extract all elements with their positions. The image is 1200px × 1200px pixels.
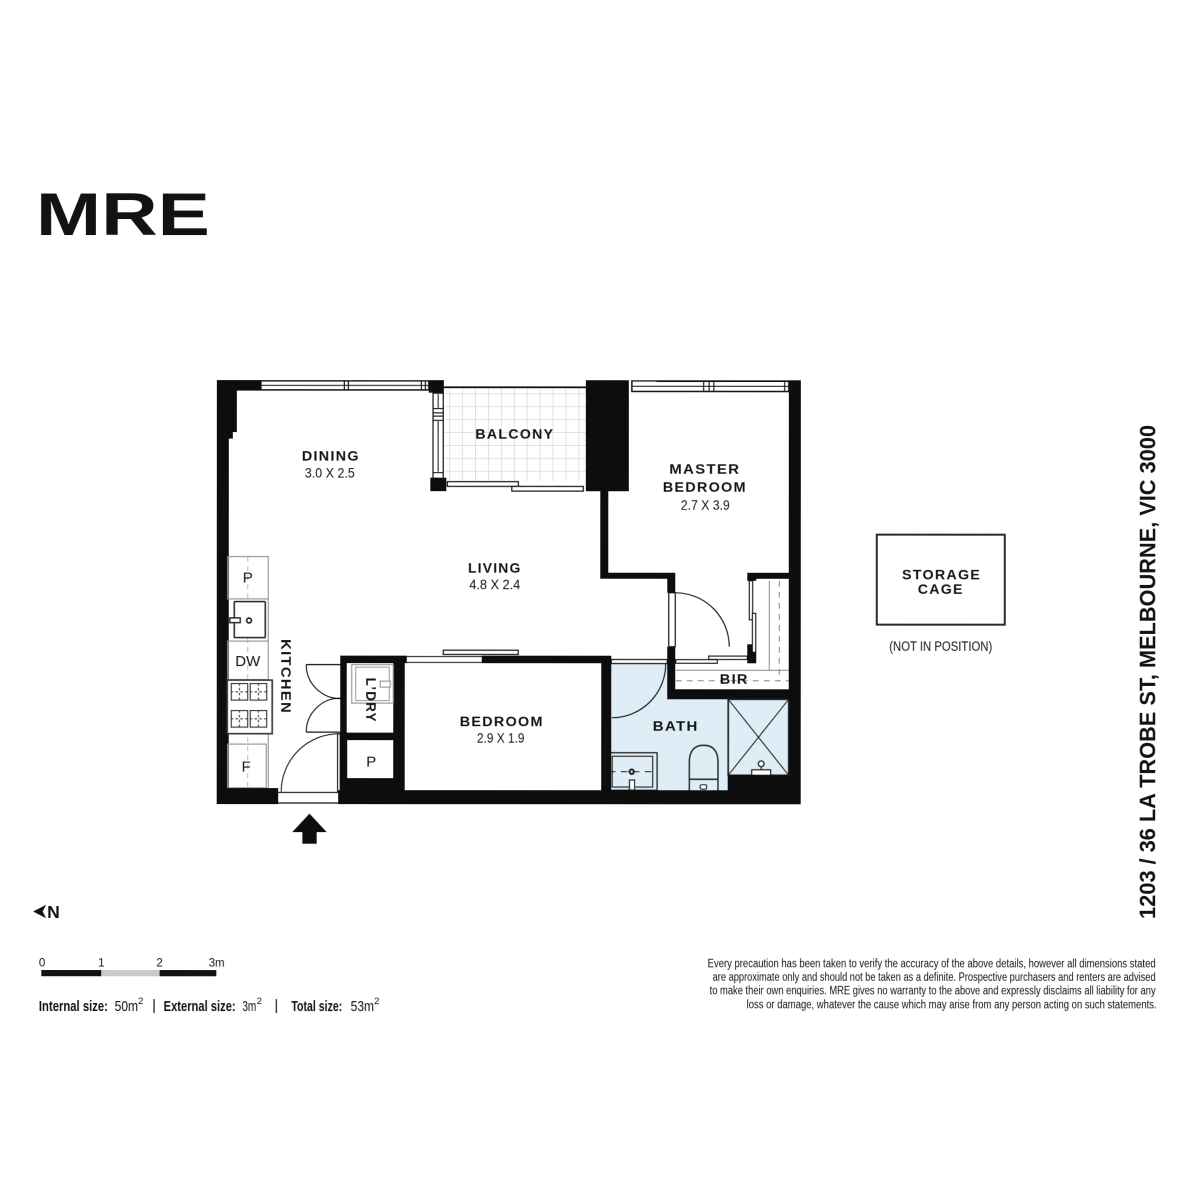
svg-text:STORAGE: STORAGE xyxy=(902,568,981,583)
svg-text:2: 2 xyxy=(138,996,143,1007)
svg-text:4.8 X 2.4: 4.8 X 2.4 xyxy=(469,577,520,592)
svg-text:3.0 X 2.5: 3.0 X 2.5 xyxy=(305,465,355,480)
svg-text:are approximate only and shoul: are approximate only and should not be t… xyxy=(713,972,1156,984)
svg-text:Internal size:: Internal size: xyxy=(39,998,108,1015)
svg-text:External size:: External size: xyxy=(164,998,236,1015)
svg-text:LIVING: LIVING xyxy=(468,561,522,576)
svg-text:P: P xyxy=(243,570,253,587)
svg-text:BALCONY: BALCONY xyxy=(475,427,554,442)
svg-text:2.7 X 3.9: 2.7 X 3.9 xyxy=(681,498,730,513)
svg-text:1: 1 xyxy=(98,958,104,970)
svg-text:CAGE: CAGE xyxy=(918,582,964,597)
svg-text:BATH: BATH xyxy=(653,719,699,734)
svg-text:(NOT IN POSITION): (NOT IN POSITION) xyxy=(889,639,992,654)
svg-text:3m: 3m xyxy=(209,958,225,970)
svg-text:Total size:: Total size: xyxy=(291,998,342,1015)
svg-text:2: 2 xyxy=(374,996,379,1007)
svg-text:2: 2 xyxy=(257,996,262,1007)
svg-text:L’DRY: L’DRY xyxy=(363,678,378,723)
svg-text:BEDROOM: BEDROOM xyxy=(460,714,544,729)
svg-text:N: N xyxy=(47,902,60,922)
svg-text:to make their own enquiries. M: to make their own enquiries. MRE gives n… xyxy=(710,985,1156,997)
svg-text:2.9 X 1.9: 2.9 X 1.9 xyxy=(477,730,525,745)
svg-text:Every precaution has been take: Every precaution has been taken to verif… xyxy=(708,958,1156,970)
svg-text:MASTER: MASTER xyxy=(669,462,740,477)
svg-text:MRE: MRE xyxy=(36,180,210,248)
svg-text:loss or damage, whatever the c: loss or damage, whatever the cause which… xyxy=(747,999,1157,1011)
svg-text:0: 0 xyxy=(39,958,45,970)
svg-text:53m: 53m xyxy=(351,998,375,1015)
svg-text:|: | xyxy=(152,997,156,1014)
svg-text:BIR: BIR xyxy=(720,672,749,687)
svg-text:F: F xyxy=(242,759,251,776)
svg-text:P: P xyxy=(366,754,376,771)
svg-text:DINING: DINING xyxy=(302,448,360,463)
svg-text:DW: DW xyxy=(235,653,261,670)
svg-text:50m: 50m xyxy=(115,998,139,1015)
svg-text:1203 / 36 LA TROBE ST, MELBOUR: 1203 / 36 LA TROBE ST, MELBOURNE, VIC 30… xyxy=(1135,425,1160,919)
svg-text:|: | xyxy=(274,997,278,1014)
svg-text:BEDROOM: BEDROOM xyxy=(663,480,747,495)
svg-text:3m: 3m xyxy=(242,998,256,1015)
svg-text:KITCHEN: KITCHEN xyxy=(278,639,293,714)
svg-text:2: 2 xyxy=(156,958,162,970)
